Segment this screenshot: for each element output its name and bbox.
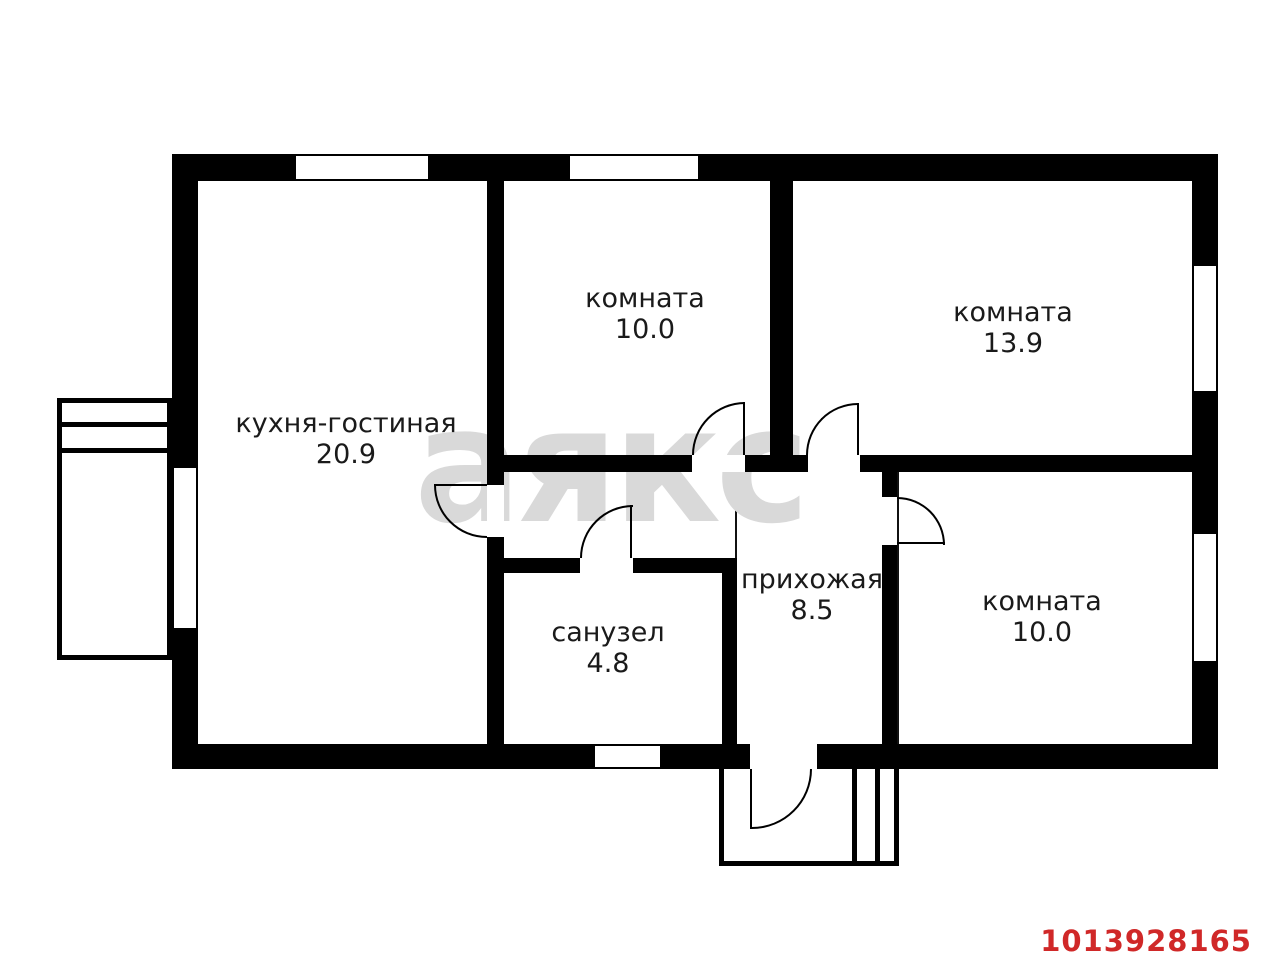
room-name: прихожая xyxy=(741,564,883,595)
room-label-bedroom-bottom: комната 10.0 xyxy=(982,586,1102,648)
door-opening-bedroom-right xyxy=(808,455,860,472)
room-name: комната xyxy=(982,586,1102,617)
window-bedroom-right-2 xyxy=(1192,532,1218,663)
room-area: 10.0 xyxy=(982,617,1102,648)
wall-bathroom-right xyxy=(722,558,737,744)
wall-right xyxy=(1192,154,1218,769)
window-kitchen-left xyxy=(172,466,198,630)
room-label-kitchen-living: кухня-гостиная 20.9 xyxy=(235,408,456,470)
porch-step-line-1 xyxy=(852,769,857,861)
room-area: 4.8 xyxy=(551,648,664,679)
window-kitchen-top xyxy=(294,154,430,181)
room-label-bedroom-right: комната 13.9 xyxy=(953,297,1073,359)
room-label-hallway: прихожая 8.5 xyxy=(741,564,883,626)
door-opening-kitchen xyxy=(487,485,504,537)
room-label-bathroom: санузел 4.8 xyxy=(551,617,664,679)
room-area: 20.9 xyxy=(235,439,456,470)
porch-step-line-2 xyxy=(875,769,880,861)
wall-left xyxy=(172,154,198,769)
room-label-bedroom-top: комната 10.0 xyxy=(585,283,705,345)
wall-bottom xyxy=(172,744,1218,769)
door-opening-bedroom-top xyxy=(692,455,745,472)
wall-bedrooms-divider xyxy=(770,181,793,455)
window-bedroom-top xyxy=(568,154,700,181)
room-name: санузел xyxy=(551,617,664,648)
room-area: 8.5 xyxy=(741,595,883,626)
balcony-rail-line-1 xyxy=(62,422,167,427)
balcony xyxy=(57,398,172,660)
room-name: комната xyxy=(953,297,1073,328)
window-bedroom-right-1 xyxy=(1192,264,1218,393)
room-name: комната xyxy=(585,283,705,314)
listing-id: 1013928165 xyxy=(1040,924,1252,958)
door-opening-bathroom xyxy=(580,558,633,573)
door-opening-bedroom-bottom xyxy=(882,497,897,545)
door-opening-entrance xyxy=(750,744,817,769)
room-area: 10.0 xyxy=(585,314,705,345)
room-name: кухня-гостиная xyxy=(235,408,456,439)
balcony-rail-line-2 xyxy=(62,448,167,453)
room-area: 13.9 xyxy=(953,328,1073,359)
floorplan: аякс кухня-гостиная xyxy=(0,0,1274,962)
window-bathroom-bottom xyxy=(593,744,662,769)
